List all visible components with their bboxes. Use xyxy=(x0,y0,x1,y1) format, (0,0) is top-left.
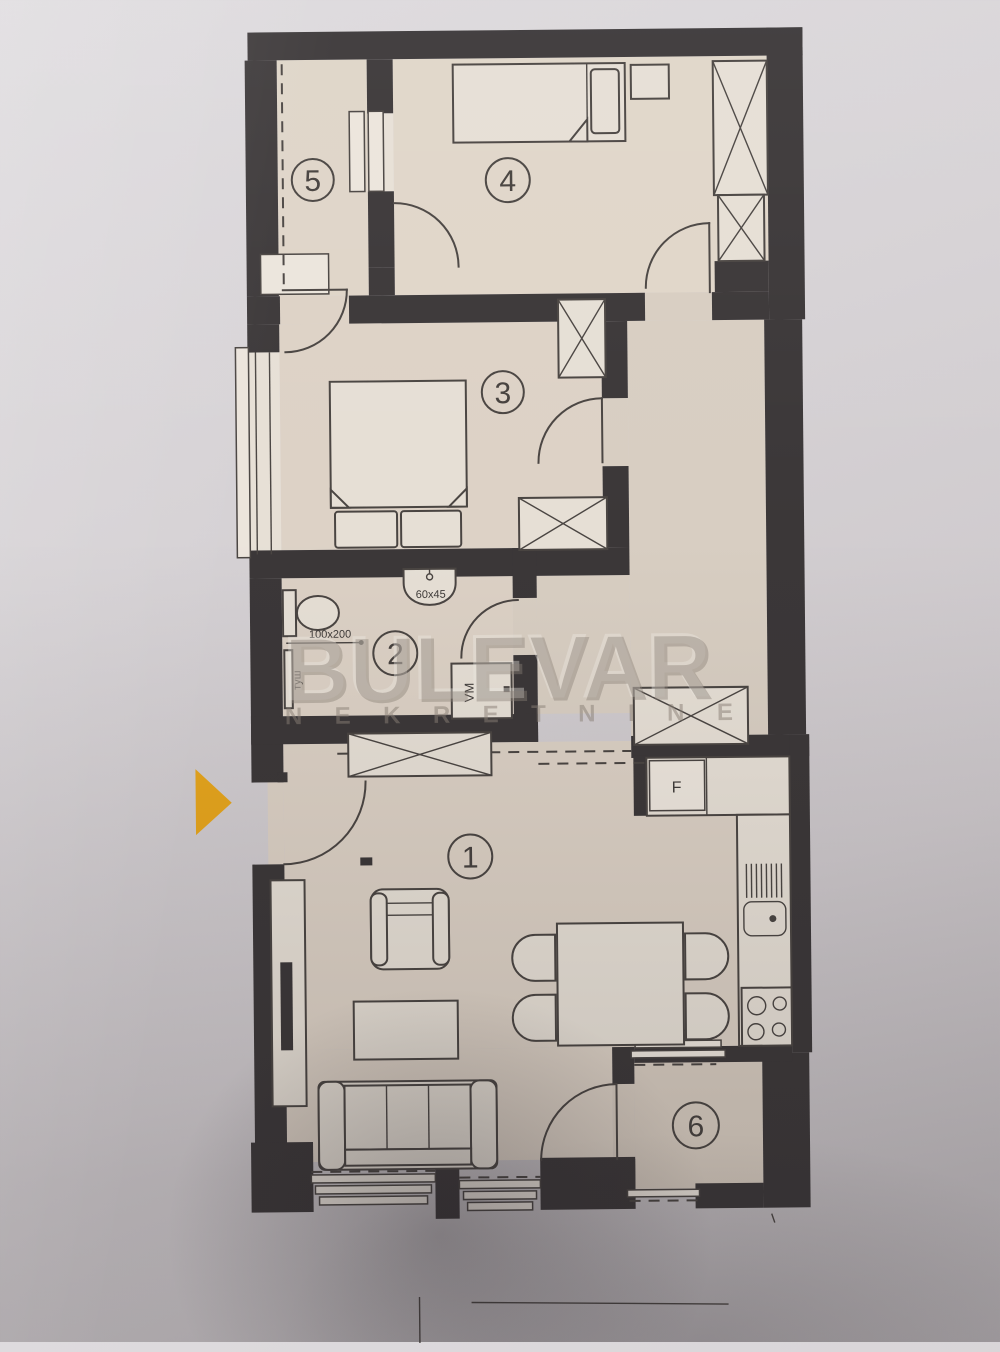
single-bed xyxy=(453,63,626,143)
window-step xyxy=(320,1196,428,1205)
window-dashed xyxy=(630,1200,700,1201)
sofa xyxy=(318,1080,497,1170)
tv-stand xyxy=(270,880,306,1106)
door-gap xyxy=(645,292,712,321)
artifact-tick xyxy=(772,1214,775,1223)
page-artifacts xyxy=(419,1214,776,1343)
stove xyxy=(742,987,793,1045)
fridge-label: F xyxy=(672,779,682,796)
watermark: BULEVAR BULEVAR NEKRETNINE xyxy=(282,614,733,730)
window-step xyxy=(468,1202,533,1211)
balcony-window-panel xyxy=(349,111,365,191)
window-step xyxy=(315,1185,431,1194)
wardrobe-x-room3-top xyxy=(558,299,606,377)
entrance-arrow-icon xyxy=(195,769,232,835)
dining-chair xyxy=(513,995,556,1041)
terrace-parapet xyxy=(260,254,328,295)
floor-plan: 1 2 3 4 5 6 60x45 100x200 туш VM F B xyxy=(0,0,1000,1352)
room-5-label: 5 xyxy=(304,165,321,198)
window-step xyxy=(311,1174,435,1183)
window-dashed xyxy=(311,1171,435,1172)
wardrobe-x-room3-bottom xyxy=(519,497,607,550)
window-dashed xyxy=(459,1177,540,1178)
window-step xyxy=(627,1189,699,1197)
door-gap xyxy=(602,398,629,466)
window-gap xyxy=(247,352,281,554)
photo-of-floor-plan: { "watermark": { "title": "BULEVAR", "su… xyxy=(0,0,1000,1342)
balcony-window-panel xyxy=(368,111,384,191)
window-sill xyxy=(235,348,250,558)
coffee-table xyxy=(354,1001,459,1060)
room-3-label: 3 xyxy=(494,377,511,410)
tv xyxy=(280,962,293,1050)
window-step xyxy=(631,1050,725,1058)
nightstand xyxy=(631,65,669,99)
room-1-label: 1 xyxy=(462,841,479,874)
wardrobe-x-room4-tall xyxy=(713,61,768,196)
armchair xyxy=(371,889,450,970)
sink-dimension-label: 60x45 xyxy=(416,589,446,601)
wardrobe-x-living xyxy=(348,732,491,776)
room-4-label: 4 xyxy=(499,165,516,198)
dining-table xyxy=(557,922,684,1045)
entrance-gap xyxy=(268,782,285,864)
wardrobe-x-room4-small xyxy=(718,195,765,261)
dining-chair xyxy=(685,933,728,979)
room-6-label: 6 xyxy=(687,1110,704,1143)
dining-chair xyxy=(686,993,729,1039)
floor-plan-svg: 1 2 3 4 5 6 60x45 100x200 туш VM F B xyxy=(0,0,1000,1347)
dining-chair xyxy=(512,935,555,981)
window-step xyxy=(463,1191,536,1200)
artifact-horizontal-line xyxy=(472,1300,729,1306)
window-step xyxy=(459,1180,540,1189)
